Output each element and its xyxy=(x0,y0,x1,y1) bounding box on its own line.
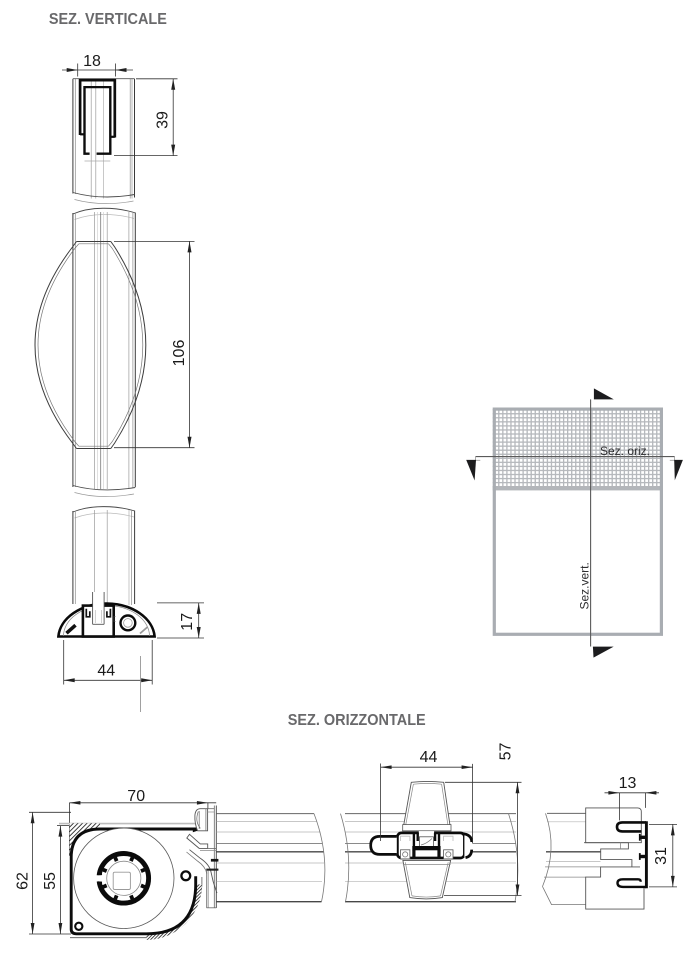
svg-text:70: 70 xyxy=(127,788,145,805)
svg-text:Sez. oriz.: Sez. oriz. xyxy=(600,444,650,458)
svg-text:44: 44 xyxy=(420,749,438,766)
svg-text:55: 55 xyxy=(42,872,59,890)
svg-text:SEZ. ORIZZONTALE: SEZ. ORIZZONTALE xyxy=(288,712,426,729)
svg-text:13: 13 xyxy=(619,775,637,792)
svg-text:39: 39 xyxy=(155,111,172,129)
svg-text:57: 57 xyxy=(498,743,515,761)
svg-text:Sez.vert.: Sez.vert. xyxy=(577,562,591,609)
svg-text:62: 62 xyxy=(15,872,32,890)
svg-text:31: 31 xyxy=(653,847,670,865)
svg-text:17: 17 xyxy=(179,613,196,631)
svg-text:106: 106 xyxy=(171,340,188,367)
svg-text:44: 44 xyxy=(97,663,115,680)
svg-text:18: 18 xyxy=(83,53,101,70)
svg-text:SEZ. VERTICALE: SEZ. VERTICALE xyxy=(49,11,167,28)
